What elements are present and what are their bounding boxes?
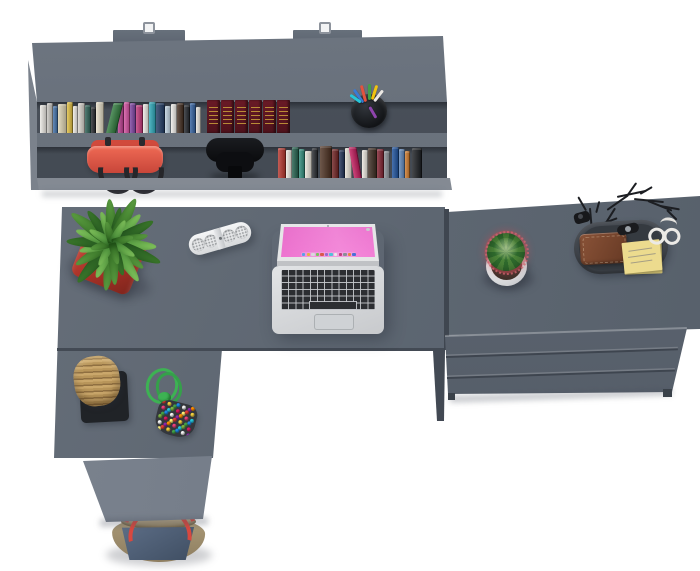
handwriting-line bbox=[631, 260, 653, 264]
chest-leg bbox=[663, 389, 672, 397]
book-spine bbox=[177, 103, 184, 133]
encyclopedia-volume bbox=[277, 100, 290, 133]
book-spine bbox=[292, 147, 299, 178]
encyclopedia-volume bbox=[249, 100, 262, 133]
bead bbox=[178, 414, 183, 419]
bead bbox=[191, 406, 196, 411]
bookshelf-row-upper bbox=[40, 102, 207, 133]
dock-icon bbox=[348, 253, 351, 257]
book-spine bbox=[156, 103, 165, 133]
branch-twig bbox=[626, 182, 636, 196]
gold-ornament bbox=[265, 107, 274, 127]
book-spine bbox=[305, 151, 312, 178]
branch-twig bbox=[617, 190, 647, 198]
dock-icon bbox=[343, 253, 346, 257]
laptop-spacebar bbox=[310, 302, 356, 309]
bead bbox=[180, 431, 185, 436]
gold-ornament bbox=[223, 107, 232, 127]
cactus-spines bbox=[485, 231, 529, 275]
encyclopedia-volume bbox=[207, 100, 220, 133]
encyclopedia-volume bbox=[263, 100, 276, 133]
furniture-render-canvas bbox=[0, 0, 700, 571]
bead bbox=[176, 403, 181, 408]
book-spine bbox=[136, 105, 143, 133]
bead bbox=[166, 421, 171, 426]
bead bbox=[166, 427, 171, 432]
bead bbox=[184, 410, 189, 415]
bead bbox=[164, 410, 169, 415]
gold-ornament bbox=[279, 107, 288, 127]
dock-icon bbox=[302, 253, 305, 257]
dock-icon bbox=[316, 253, 319, 257]
bead bbox=[181, 425, 186, 430]
apple-logo-icon bbox=[366, 228, 370, 231]
glasses-bridge bbox=[661, 231, 667, 234]
dock-icon bbox=[307, 253, 310, 257]
book-spine bbox=[377, 149, 384, 178]
book-spine bbox=[412, 148, 422, 178]
book-spine bbox=[96, 102, 104, 133]
handbag-buckle bbox=[139, 137, 145, 146]
handwriting-line bbox=[628, 253, 656, 258]
camera-lens bbox=[578, 214, 583, 219]
dock-icon bbox=[325, 253, 328, 257]
bead bbox=[172, 417, 177, 422]
dock-icon bbox=[311, 253, 314, 257]
gold-ornament bbox=[237, 107, 246, 127]
book-spine bbox=[196, 107, 201, 133]
wallet-stitching bbox=[582, 235, 626, 264]
encyclopedia-volume bbox=[235, 100, 248, 133]
bead bbox=[160, 425, 165, 430]
laptop-camera-dot bbox=[327, 225, 329, 227]
book-spine bbox=[312, 148, 318, 178]
speaker-grille bbox=[234, 224, 250, 240]
laptop-dock bbox=[301, 252, 356, 257]
book-spine bbox=[278, 148, 286, 178]
book-spine bbox=[58, 104, 67, 133]
branch-twig bbox=[640, 186, 653, 194]
bead bbox=[158, 414, 163, 419]
shelf-shadow bbox=[42, 191, 442, 197]
dock-icon bbox=[320, 253, 323, 257]
bead bbox=[186, 427, 191, 432]
dock-icon bbox=[334, 253, 337, 257]
dock-icon bbox=[339, 253, 342, 257]
book-spine bbox=[40, 105, 47, 133]
pen bbox=[368, 106, 377, 119]
handwriting-line bbox=[628, 247, 652, 251]
book-spine bbox=[332, 149, 339, 178]
encyclopedia-set bbox=[207, 100, 292, 133]
portable-speaker bbox=[186, 222, 256, 262]
office-chair-stem bbox=[228, 166, 242, 179]
dock-icon bbox=[352, 253, 355, 257]
wall-hook-icon bbox=[143, 22, 155, 34]
pen-group bbox=[351, 80, 391, 120]
speaker-body bbox=[186, 220, 253, 258]
handbag-buckle bbox=[105, 137, 111, 146]
bookshelf-row-lower bbox=[278, 147, 433, 178]
bead bbox=[170, 406, 175, 411]
chest-leg bbox=[448, 393, 455, 400]
book-spine bbox=[392, 147, 399, 178]
bead bbox=[175, 428, 180, 433]
watch-face bbox=[625, 226, 631, 232]
book-spine bbox=[78, 103, 85, 133]
bead bbox=[161, 399, 166, 404]
book-spine bbox=[405, 151, 410, 178]
bead bbox=[190, 412, 195, 417]
encyclopedia-volume bbox=[221, 100, 234, 133]
book-spine bbox=[384, 151, 390, 178]
bead bbox=[187, 421, 192, 426]
laptop-trackpad bbox=[314, 314, 354, 330]
book-spine bbox=[368, 148, 377, 178]
book-spine bbox=[149, 102, 156, 133]
wall-hook-icon bbox=[319, 22, 331, 34]
book-spine bbox=[320, 146, 332, 178]
dock-icon bbox=[329, 253, 332, 257]
gold-ornament bbox=[251, 107, 260, 127]
gold-ornament bbox=[209, 107, 218, 127]
